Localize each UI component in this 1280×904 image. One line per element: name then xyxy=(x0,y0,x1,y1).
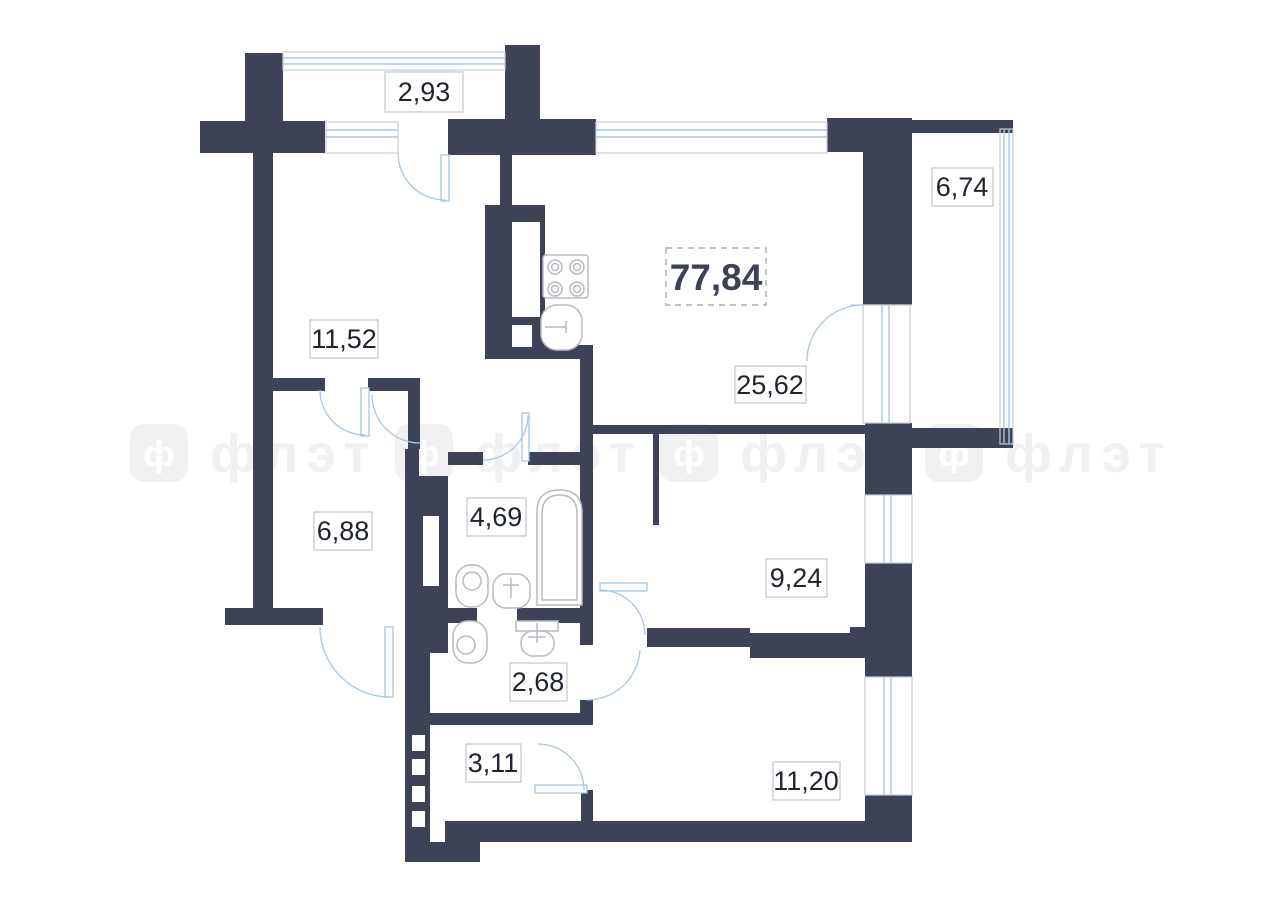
room-area-value: 2,93 xyxy=(398,77,451,107)
room-label-room-top-left: 11,52 xyxy=(310,320,378,358)
total-area-label: 77,84 xyxy=(666,248,766,305)
room-area-value: 4,69 xyxy=(470,502,523,532)
room-area-value: 3,11 xyxy=(468,748,519,778)
room-label-hall-left: 6,88 xyxy=(314,512,372,550)
room-label-bedroom-right: 9,24 xyxy=(766,559,827,597)
bathroom-sink-icon xyxy=(456,565,488,607)
room-label-balcony-right: 6,74 xyxy=(932,168,993,206)
room-label-wc: 2,68 xyxy=(510,663,567,701)
room-label-bedroom-bottom: 11,20 xyxy=(773,762,840,800)
room-area-value: 11,20 xyxy=(773,766,839,796)
room-area-value: 6,88 xyxy=(317,516,370,546)
watermark-logo-letter: ф xyxy=(673,433,705,474)
kitchen-sink-icon xyxy=(541,305,582,350)
room-area-value: 11,52 xyxy=(311,324,377,354)
stove-icon xyxy=(543,255,588,298)
bathroom-toilet-icon xyxy=(493,574,530,608)
floor-plan-page: ф флэт ф флэт ф флэт ф флэт xyxy=(0,0,1280,904)
floor-plan-svg: ф флэт ф флэт ф флэт ф флэт xyxy=(0,0,1280,904)
bathtub-icon xyxy=(537,490,582,605)
total-area-value: 77,84 xyxy=(670,257,763,298)
watermark-logo-letter: ф xyxy=(143,433,175,474)
room-area-value: 9,24 xyxy=(770,563,823,593)
room-area-value: 6,74 xyxy=(936,172,989,202)
room-area-value: 25,62 xyxy=(736,370,804,400)
room-label-living-kitchen: 25,62 xyxy=(735,366,806,403)
wc-sink-icon xyxy=(453,621,487,663)
room-label-bathroom: 4,69 xyxy=(467,498,526,536)
room-label-balcony-top: 2,93 xyxy=(385,72,463,112)
watermark-text: флэт xyxy=(1005,424,1173,484)
room-label-storage: 3,11 xyxy=(466,744,521,782)
room-area-value: 2,68 xyxy=(512,667,565,697)
wc-toilet-icon xyxy=(516,621,558,656)
